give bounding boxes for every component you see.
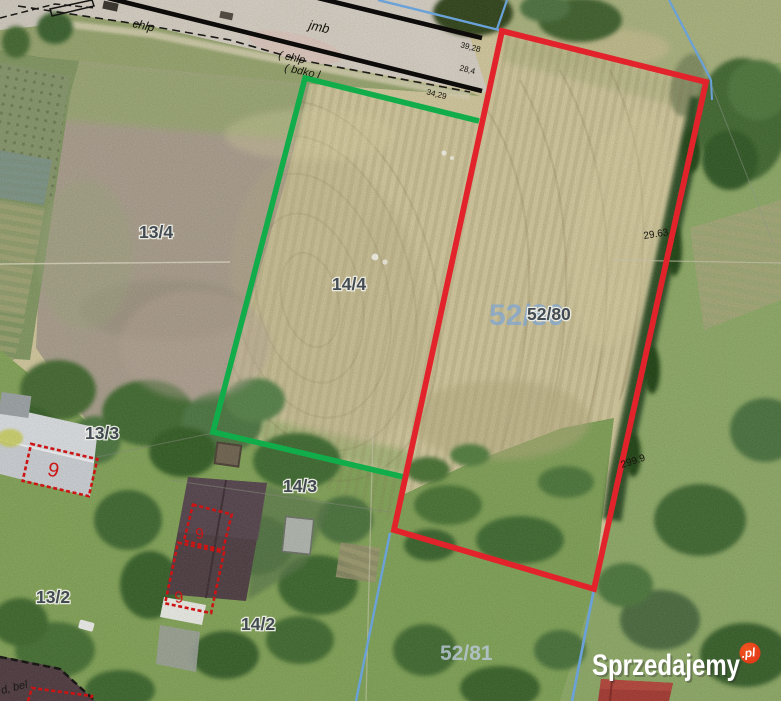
svg-text:52/80: 52/80 xyxy=(527,304,571,324)
svg-text:Sprzedajemy: Sprzedajemy xyxy=(592,649,740,682)
svg-text:52/81: 52/81 xyxy=(440,642,493,665)
svg-text:13/4: 13/4 xyxy=(139,222,173,242)
svg-text:14/3: 14/3 xyxy=(283,476,317,496)
svg-text:9: 9 xyxy=(174,589,185,607)
svg-text:13/2: 13/2 xyxy=(36,587,70,607)
svg-text:13/3: 13/3 xyxy=(85,423,119,443)
svg-text:14/4: 14/4 xyxy=(332,274,366,294)
svg-text:9: 9 xyxy=(195,525,205,543)
svg-text:14/2: 14/2 xyxy=(241,614,275,634)
svg-text:.pl: .pl xyxy=(740,645,756,661)
